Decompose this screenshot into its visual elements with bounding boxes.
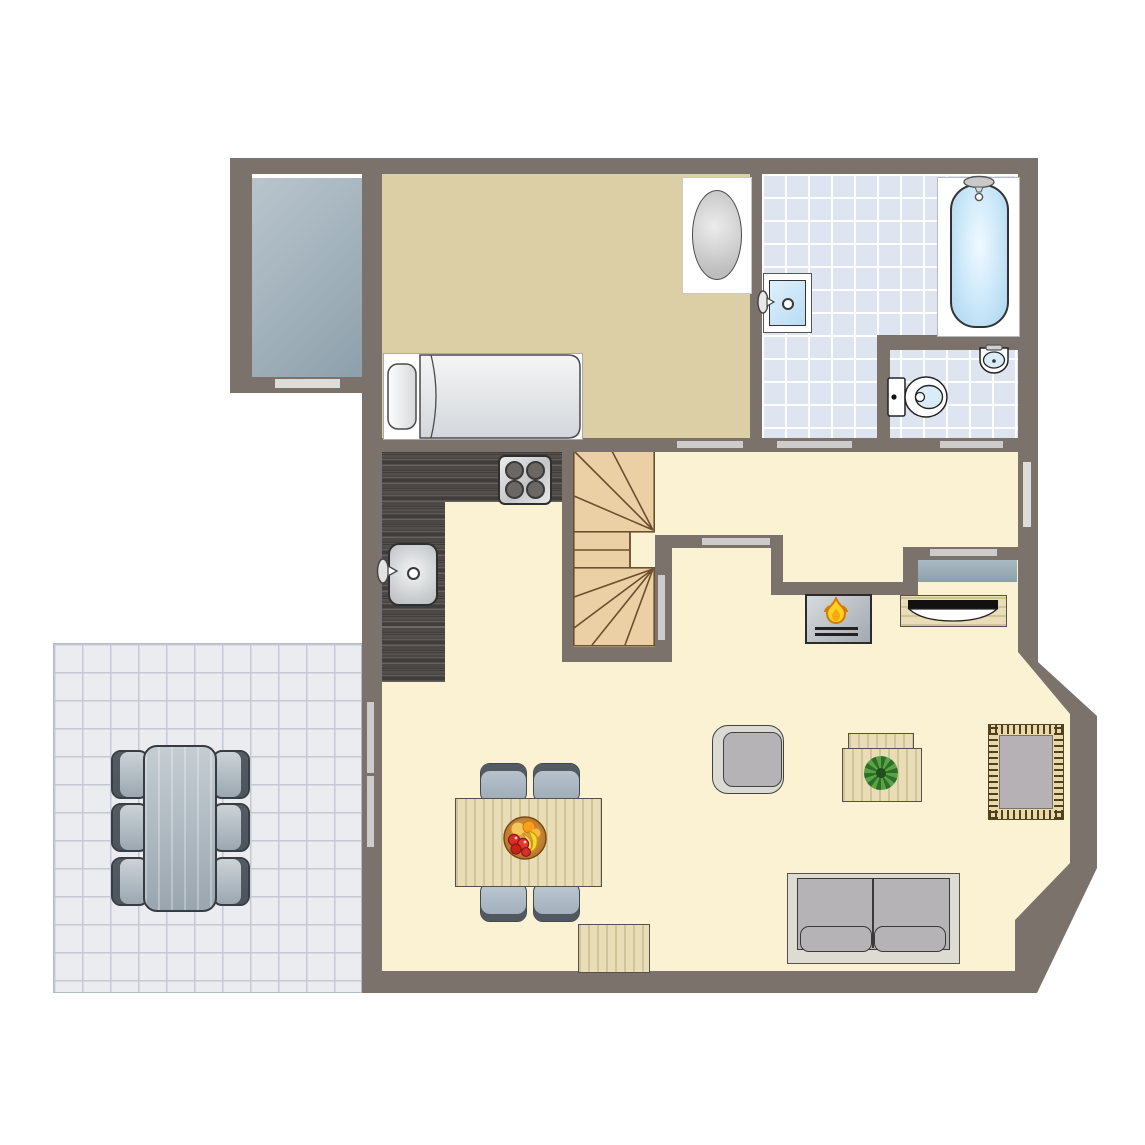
bathtub xyxy=(950,184,1009,328)
bedroom-door xyxy=(677,441,743,448)
rug xyxy=(988,724,1064,820)
rug-fringe xyxy=(989,810,1063,819)
toilet xyxy=(886,374,950,420)
burner-icon xyxy=(526,461,545,480)
fireplace-line xyxy=(815,627,858,630)
burner-icon xyxy=(526,480,545,499)
outdoor-table xyxy=(143,745,217,912)
plant xyxy=(864,756,898,790)
stairwell-door xyxy=(658,575,665,640)
bathroom-door xyxy=(777,441,852,448)
wc-door xyxy=(940,441,1003,448)
kitchen-faucet-icon xyxy=(376,556,400,586)
closet-wardrobe xyxy=(918,560,1017,582)
rug-fringe xyxy=(989,725,998,819)
cabinet-oval-top xyxy=(692,190,742,280)
fireplace-line xyxy=(815,633,858,636)
sink-drain-icon xyxy=(407,567,420,580)
outdoor-chair xyxy=(212,803,250,852)
rug-fringe xyxy=(1054,725,1063,819)
bath-faucet-icon xyxy=(757,288,779,316)
closet-door xyxy=(930,549,997,556)
bed xyxy=(383,353,583,440)
shower-head-icon xyxy=(960,175,998,203)
outdoor-chair xyxy=(212,750,250,799)
rug-fringe xyxy=(989,725,1063,734)
dining-chair xyxy=(480,882,527,922)
burner-icon xyxy=(505,461,524,480)
floor-plan xyxy=(0,0,1145,1145)
dining-chair xyxy=(480,763,527,803)
burner-icon xyxy=(505,480,524,499)
east-window xyxy=(1023,462,1031,527)
terrace-door-lower xyxy=(367,776,374,847)
outdoor-chair xyxy=(212,857,250,906)
sofa-seat-cushion xyxy=(874,926,946,952)
tv-stand-icon xyxy=(906,608,1000,623)
hallway-door xyxy=(702,538,770,545)
balcony-window xyxy=(275,379,340,388)
terrace-door-upper xyxy=(367,702,374,773)
flame-icon xyxy=(820,597,852,625)
bench xyxy=(578,924,650,973)
sofa-seat-cushion xyxy=(800,926,872,952)
stove xyxy=(498,455,552,505)
fruit-bowl xyxy=(503,816,547,860)
dining-chair xyxy=(533,882,580,922)
armchair-seat xyxy=(723,732,782,787)
bath-sink-drain-icon xyxy=(782,298,794,310)
corner-sink xyxy=(973,344,1015,380)
rug-center xyxy=(999,735,1053,809)
dining-chair xyxy=(533,763,580,803)
